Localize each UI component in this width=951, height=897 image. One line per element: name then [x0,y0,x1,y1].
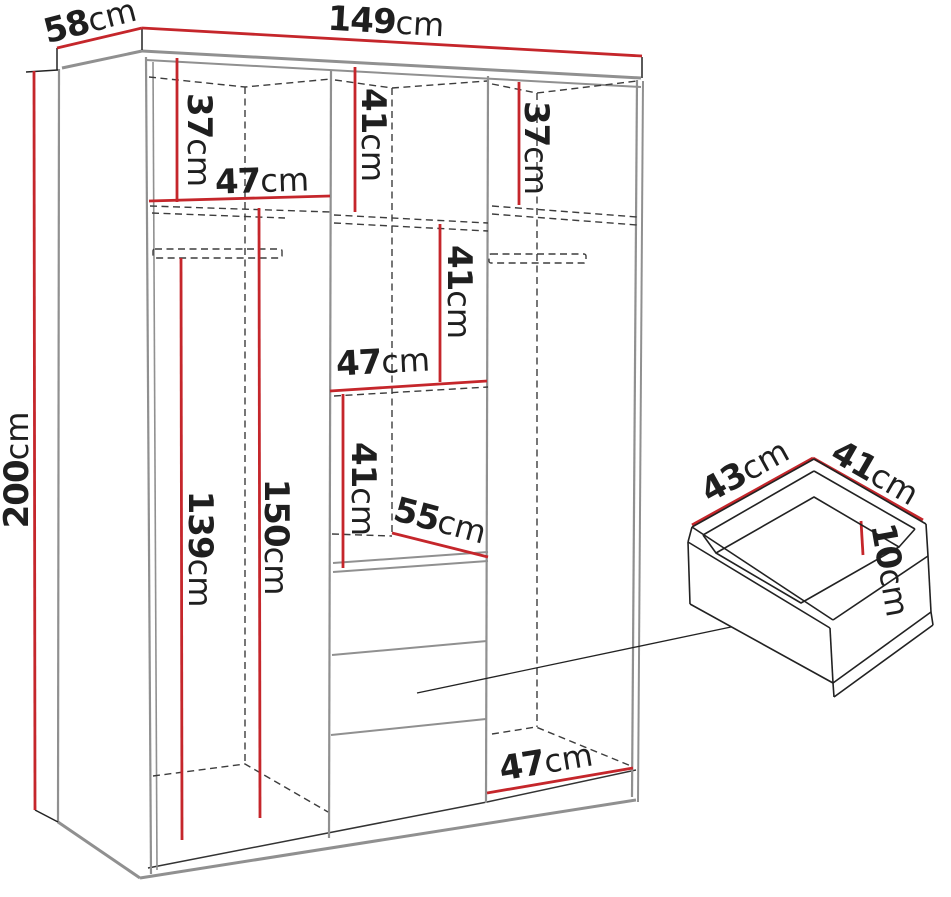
label-overall-height: 200cm [0,412,37,529]
drawer-stack-top-edge-inner [333,561,488,572]
label-left-hanging-height: 139cm [180,491,220,608]
drawer-divider-1 [332,641,487,655]
dimension-lines [34,28,923,840]
label-detail-drawer-depth: 41cm [824,432,925,514]
middle-shelf1-back-edge [334,223,488,231]
height-dim-bottom-tick [35,810,58,822]
label-overall-width: 149cm [327,0,446,45]
drawer-front-right-edge [830,628,833,683]
divider-middle-right [486,76,488,803]
label-middle-shelf-width: 47cm [335,340,431,385]
drawer-leader-line [417,627,731,693]
left-bottom-corner-edge [58,822,140,878]
right-shelf-front-edge [492,206,637,217]
label-left-shelf-width: 47cm [214,159,309,202]
middle-shelf1-front-edge [334,215,488,223]
left-side-outer-edge [58,69,59,822]
drawer-stack-top-edge [333,552,488,563]
front-right-post [632,80,637,797]
plinth-bottom-edge [140,800,636,878]
drawer-front-left-edge [688,542,690,604]
top-left-edge [62,51,142,68]
diagram-svg: 58cm 149cm 200cm 37cm 47cm 139cm 150cm 4… [0,0,951,897]
front-left-post [146,57,151,874]
label-middle-top-height: 41cm [353,88,393,182]
drawer-front-top-inner [692,527,833,620]
label-left-top-height: 37cm [179,93,219,187]
drawer-back-right-corner [926,524,928,556]
label-middle-lower-height: 41cm [343,442,383,536]
divider-left-middle [329,71,331,838]
label-overall-depth: 58cm [39,0,140,52]
label-middle-upper-height: 41cm [439,245,479,339]
left-shelf-back-edge [152,213,285,218]
middle-column-top-back [335,80,487,88]
height-dim-top-tick [26,70,58,72]
wardrobe-dimension-diagram: 58cm 149cm 200cm 37cm 47cm 139cm 150cm 4… [0,0,951,897]
dimension-labels: 58cm 149cm 200cm 37cm 47cm 139cm 150cm 4… [0,0,926,789]
drawer-detail [417,459,933,697]
front-right-post-outer [638,81,643,802]
right-shelf-back-edge [492,214,637,225]
drawer-stack [331,552,488,735]
left-column-floor-back [153,764,328,812]
label-drawer-top-depth: 55cm [389,490,490,553]
label-detail-drawer-width: 43cm [694,431,796,512]
drawer-base-corner [833,683,834,697]
drawer-base-edge [834,625,933,697]
drawer-right-corner [928,556,931,612]
left-hanging-rod [153,249,282,258]
drawer-divider-2 [331,719,486,735]
label-right-top-height: 37cm [516,101,556,195]
drawer-right-bottom [833,612,931,683]
drawer-left-corner [688,527,692,542]
drawer-front-bottom [690,604,833,683]
left-shelf-front-edge [150,206,330,212]
front-left-post-inner [153,62,157,870]
drawer-base-right [931,612,933,625]
cabinet-bottom-edge [148,770,636,868]
label-left-inner-height: 150cm [256,479,296,596]
